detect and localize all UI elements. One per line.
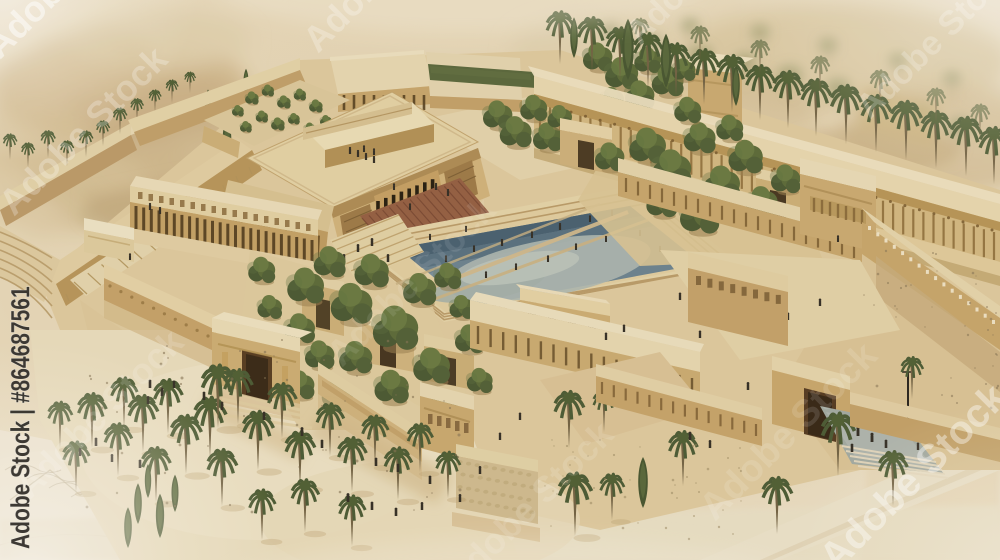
svg-text:Adobe Stock | #864687561: Adobe Stock | #864687561 <box>6 286 36 549</box>
